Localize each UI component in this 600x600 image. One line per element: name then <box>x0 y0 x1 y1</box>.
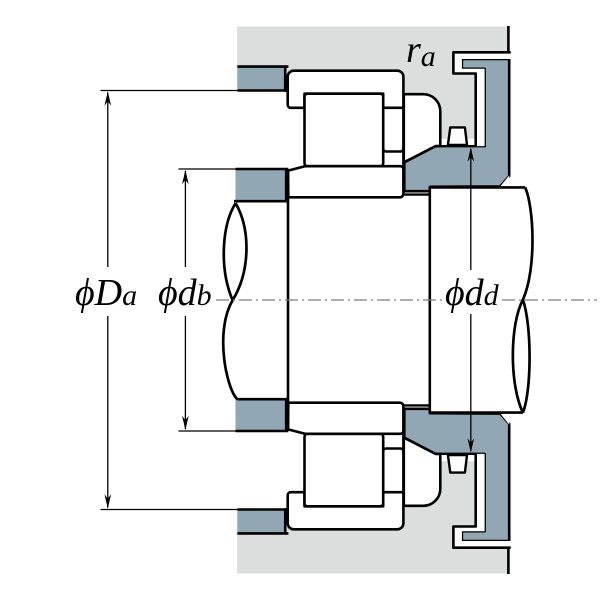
svg-text:ϕdd: ϕdd <box>445 272 500 314</box>
svg-text:ϕDa: ϕDa <box>75 272 137 314</box>
svg-text:ϕdb: ϕdb <box>158 272 212 314</box>
